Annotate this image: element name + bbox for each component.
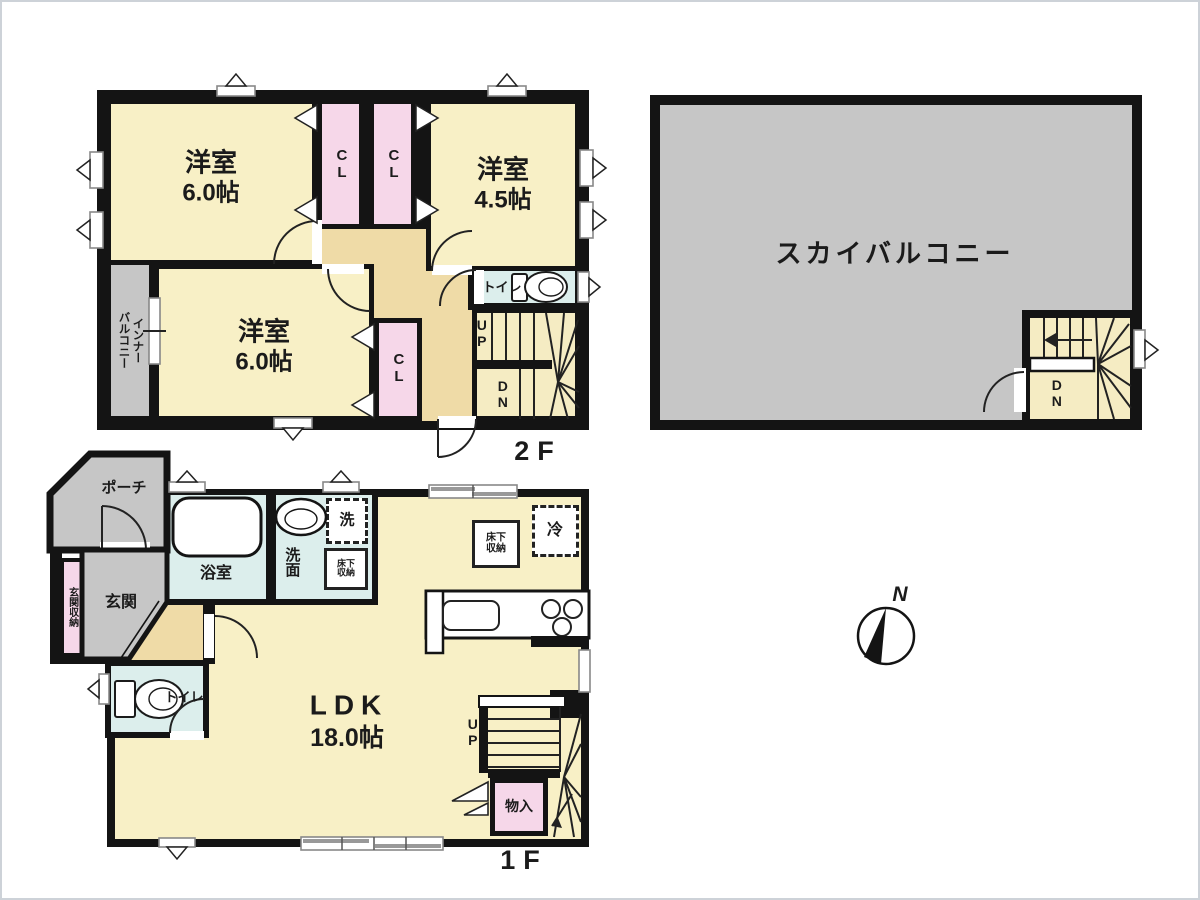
- floor2-caption: 2F: [514, 436, 562, 466]
- ldk-label: LDK: [310, 689, 389, 720]
- washroom-label: 洗面: [283, 547, 300, 577]
- closet-label: CL: [390, 351, 407, 385]
- ldk-size: 18.0帖: [310, 724, 384, 752]
- casement-mark: [593, 158, 606, 178]
- inner-balcony-label: バルコニー インナー: [117, 311, 144, 369]
- casement-mark: [88, 680, 99, 698]
- room-label: 洋室: [477, 155, 529, 184]
- compass-north-label: N: [892, 583, 907, 607]
- floor1-caption: 1F: [500, 845, 548, 875]
- closet-label: CL: [333, 147, 350, 181]
- compass-needle: [864, 608, 886, 664]
- washer-label: 洗: [339, 513, 354, 530]
- storage-label: 物入: [505, 799, 533, 815]
- room-size: 4.5帖: [474, 188, 531, 215]
- underfloor-label: 床下 収納: [486, 534, 506, 555]
- inner-balcony-line2: バルコニー: [117, 311, 130, 369]
- underfloor-label: 床下 収納: [337, 560, 355, 579]
- bathroom: [162, 489, 272, 605]
- casement-mark: [589, 278, 600, 296]
- stairs-up-label: UP: [464, 716, 480, 748]
- vent-mark: [331, 471, 351, 482]
- vent-mark: [497, 74, 517, 86]
- wall-stairs-corner: [550, 690, 589, 718]
- inner-balcony-line1: インナー: [131, 311, 144, 369]
- stairs-down-label: DN: [1048, 377, 1064, 409]
- vent-mark: [167, 847, 187, 859]
- wall-hall-ldk: [203, 597, 215, 664]
- toilet-label: トイレ: [164, 691, 203, 706]
- room-size: 6.0帖: [182, 181, 239, 208]
- floorplan-image: 洋室 6.0帖 洋室 4.5帖 洋室 6.0帖 CL CL CL トイレ UP …: [0, 0, 1200, 900]
- sky-balcony-label: スカイバルコニー: [776, 239, 1015, 268]
- vent-mark: [226, 74, 246, 86]
- casement-mark: [1145, 340, 1158, 360]
- porch-label: ポーチ: [101, 481, 146, 498]
- staircase-sky: [1022, 310, 1138, 427]
- stairs-down-label: DN: [494, 378, 510, 410]
- fridge-label: 冷: [547, 522, 563, 540]
- casement-mark: [77, 220, 90, 240]
- casement-mark: [593, 210, 606, 230]
- entrance-storage-label: 玄関収納: [66, 587, 77, 627]
- vent-mark: [177, 471, 197, 482]
- underfloor-line2: 収納: [337, 569, 355, 578]
- room-label: 洋室: [238, 317, 290, 346]
- casement-mark: [77, 160, 90, 180]
- closet-label: CL: [385, 147, 402, 181]
- underfloor-line2: 収納: [486, 544, 506, 555]
- room-western-45: [426, 99, 580, 271]
- wall-between-closets: [362, 99, 371, 229]
- compass-circle: [858, 608, 914, 664]
- entrance-label: 玄関: [105, 594, 137, 612]
- stairs-up-label: UP: [473, 317, 489, 349]
- bathroom-label: 浴室: [200, 565, 232, 583]
- room-size: 6.0帖: [235, 350, 292, 377]
- toilet-label: トイレ: [482, 281, 521, 296]
- room-label: 洋室: [185, 148, 237, 177]
- underfloor-line1: 床下: [486, 534, 506, 545]
- compass: [858, 608, 914, 664]
